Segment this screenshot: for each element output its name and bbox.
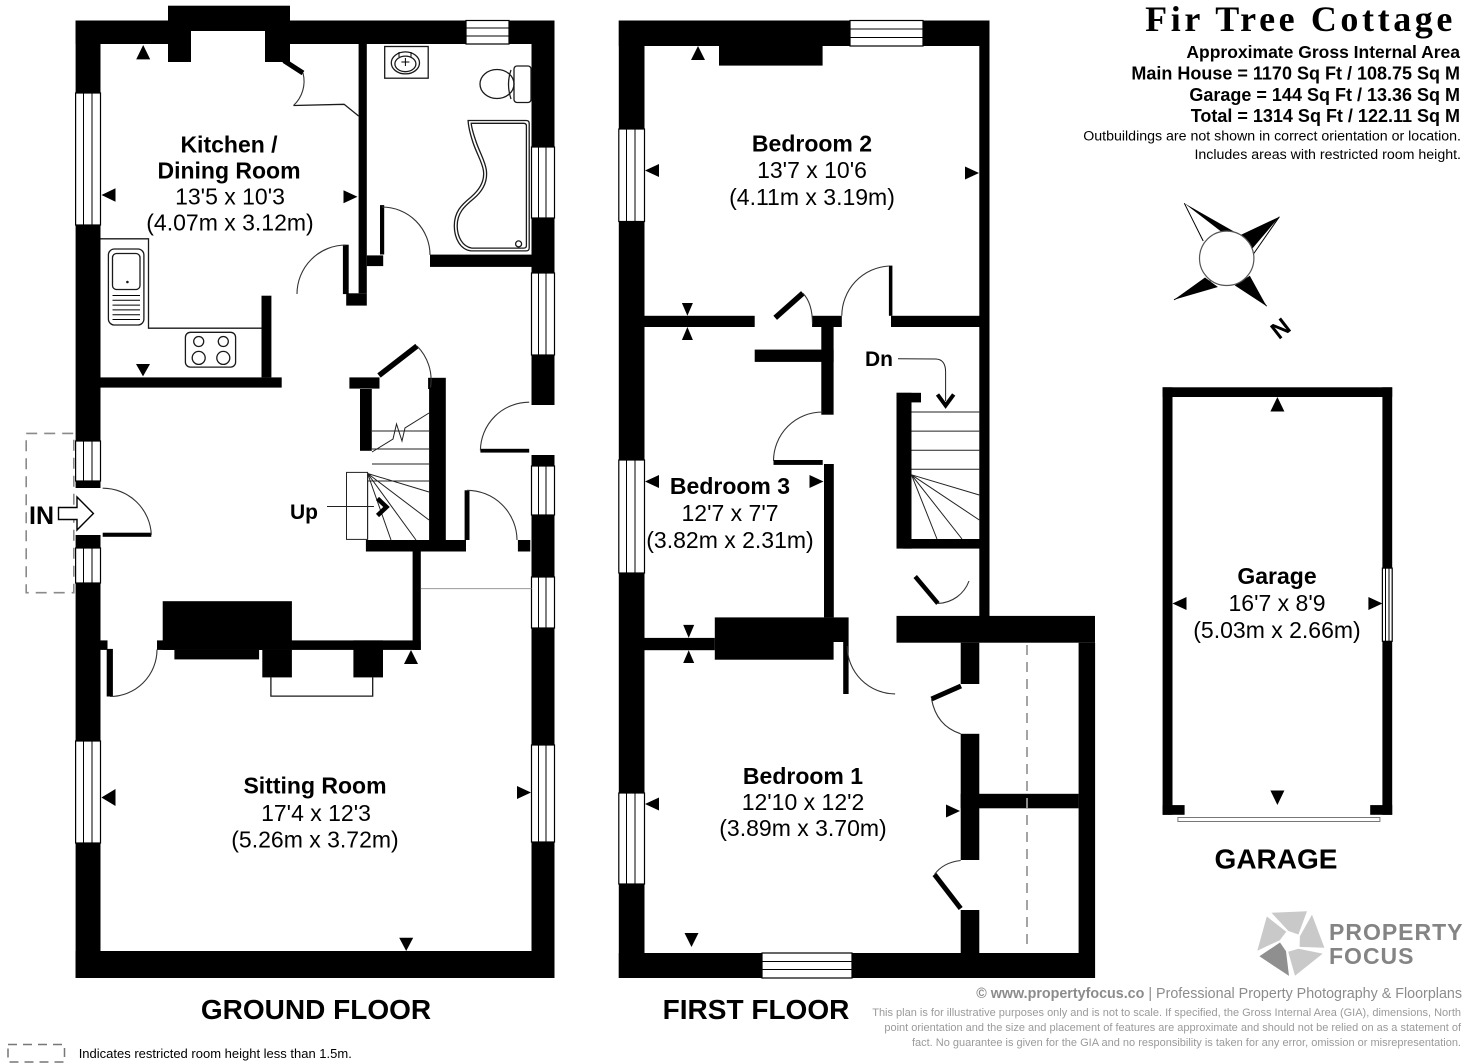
svg-text:© www.propertyfocus.co | Profe: © www.propertyfocus.co | Professional Pr… <box>976 986 1462 1002</box>
svg-text:Main House = 1170 Sq Ft / 108.: Main House = 1170 Sq Ft / 108.75 Sq M <box>1131 64 1460 84</box>
svg-text:13'7 x 10'6: 13'7 x 10'6 <box>757 157 867 183</box>
svg-text:Bedroom 2: Bedroom 2 <box>752 131 872 157</box>
svg-text:GROUND FLOOR: GROUND FLOOR <box>201 994 431 1025</box>
svg-text:12'7 x 7'7: 12'7 x 7'7 <box>681 500 778 526</box>
svg-text:IN: IN <box>29 502 54 530</box>
svg-text:Outbuildings are not shown in: Outbuildings are not shown in correct or… <box>1083 129 1461 145</box>
svg-text:(3.89m x 3.70m): (3.89m x 3.70m) <box>719 815 886 841</box>
svg-text:(3.82m x 2.31m): (3.82m x 2.31m) <box>646 527 813 553</box>
svg-text:Bedroom 3: Bedroom 3 <box>670 473 790 499</box>
svg-text:fact. No guarantee is given fo: fact. No guarantee is given for the GIA … <box>912 1037 1461 1049</box>
svg-text:PROPERTY: PROPERTY <box>1329 919 1464 945</box>
svg-text:Total = 1314 Sq Ft / 122.11 Sq: Total = 1314 Sq Ft / 122.11 Sq M <box>1191 106 1460 126</box>
svg-text:12'10 x 12'2: 12'10 x 12'2 <box>742 789 865 815</box>
svg-text:point orientation and the size: point orientation and the size and place… <box>884 1022 1462 1034</box>
svg-text:(4.11m x 3.19m): (4.11m x 3.19m) <box>729 184 895 210</box>
svg-text:Up: Up <box>290 501 318 524</box>
svg-text:This plan is for illustrative: This plan is for illustrative purposes o… <box>872 1007 1461 1019</box>
svg-text:GARAGE: GARAGE <box>1215 844 1338 875</box>
svg-text:Dn: Dn <box>865 348 893 371</box>
svg-text:(5.03m x 2.66m): (5.03m x 2.66m) <box>1193 617 1360 643</box>
svg-text:17'4 x 12'3: 17'4 x 12'3 <box>261 800 371 826</box>
svg-text:Kitchen /: Kitchen / <box>180 132 278 158</box>
svg-text:13'5 x 10'3: 13'5 x 10'3 <box>175 184 285 210</box>
svg-text:Indicates restricted room heig: Indicates restricted room height less th… <box>79 1046 352 1061</box>
svg-text:(4.07m x 3.12m): (4.07m x 3.12m) <box>146 210 313 236</box>
svg-text:Garage: Garage <box>1237 563 1316 589</box>
svg-text:Approximate Gross Internal Are: Approximate Gross Internal Area <box>1186 42 1460 62</box>
svg-text:Bedroom 1: Bedroom 1 <box>743 763 863 789</box>
svg-text:Includes areas with restricted: Includes areas with restricted room heig… <box>1194 147 1461 163</box>
svg-text:Fir Tree Cottage: Fir Tree Cottage <box>1145 0 1456 39</box>
svg-text:Dining Room: Dining Room <box>157 158 300 184</box>
svg-text:16'7 x 8'9: 16'7 x 8'9 <box>1228 590 1325 616</box>
svg-text:Garage = 144 Sq Ft / 13.36 Sq: Garage = 144 Sq Ft / 13.36 Sq M <box>1189 85 1460 105</box>
svg-text:(5.26m x 3.72m): (5.26m x 3.72m) <box>231 827 398 853</box>
svg-text:Sitting Room: Sitting Room <box>243 772 386 798</box>
svg-text:FOCUS: FOCUS <box>1329 943 1415 969</box>
svg-text:FIRST FLOOR: FIRST FLOOR <box>663 994 850 1025</box>
